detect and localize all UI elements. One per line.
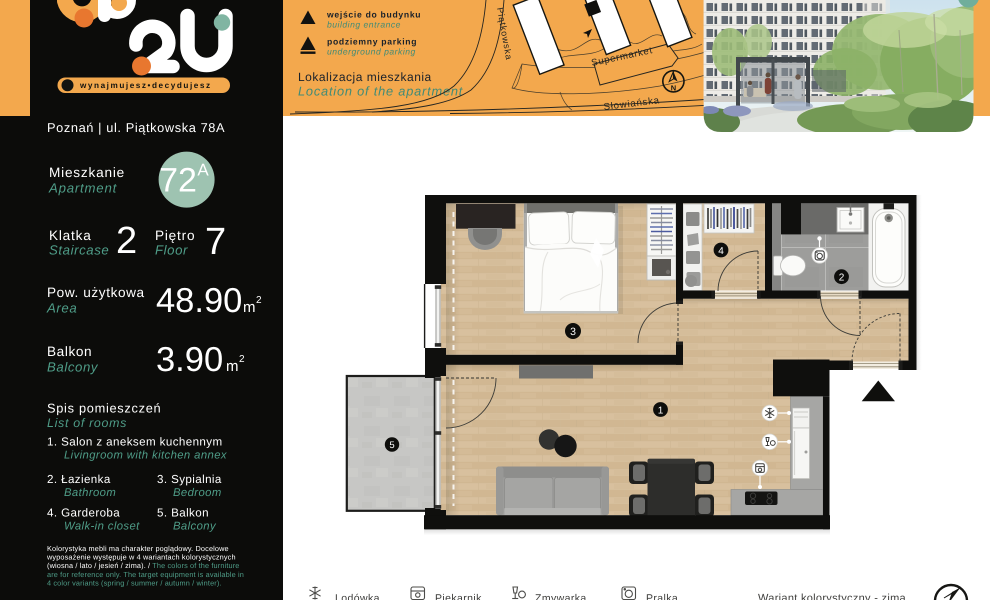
- svg-text:Walk-in closet: Walk-in closet: [64, 521, 140, 533]
- svg-text:A: A: [197, 161, 209, 180]
- svg-text:Area: Area: [46, 301, 77, 316]
- svg-text:Lodówka: Lodówka: [335, 593, 380, 600]
- svg-text:4: 4: [718, 246, 724, 257]
- svg-text:1: 1: [658, 405, 664, 416]
- svg-text:Zmywarka: Zmywarka: [535, 593, 587, 600]
- svg-text:3.90: 3.90: [156, 341, 223, 379]
- svg-text:3. Sypialnia: 3. Sypialnia: [157, 473, 222, 486]
- svg-text:Balcony: Balcony: [47, 360, 99, 375]
- svg-text:Spis pomieszczeń: Spis pomieszczeń: [47, 401, 161, 416]
- svg-text:Staircase: Staircase: [49, 243, 109, 258]
- svg-text:List of rooms: List of rooms: [47, 416, 127, 430]
- svg-text:4 color variants (spring / sum: 4 color variants (spring / summer / autu…: [47, 578, 222, 587]
- svg-text:Mieszkanie: Mieszkanie: [49, 165, 125, 180]
- svg-text:2. Łazienka: 2. Łazienka: [47, 473, 111, 486]
- svg-text:72: 72: [159, 162, 197, 200]
- svg-text:Piekarnik: Piekarnik: [435, 593, 482, 600]
- svg-text:48.90: 48.90: [156, 282, 242, 320]
- svg-text:Floor: Floor: [155, 243, 188, 258]
- svg-text:Wariant kolorystyczny - zima: Wariant kolorystyczny - zima: [758, 593, 907, 600]
- svg-text:Pralka: Pralka: [646, 593, 678, 600]
- svg-text:5. Balkon: 5. Balkon: [157, 507, 209, 520]
- svg-text:m: m: [243, 299, 256, 316]
- svg-text:Poznań | ul. Piątkowska 78A: Poznań | ul. Piątkowska 78A: [47, 120, 225, 135]
- svg-text:building entrance: building entrance: [327, 20, 401, 30]
- svg-text:Balkon: Balkon: [47, 344, 92, 359]
- svg-text:Piętro: Piętro: [155, 228, 195, 243]
- svg-text:7: 7: [205, 221, 226, 263]
- svg-text:Livingroom with kitchen annex: Livingroom with kitchen annex: [64, 450, 227, 462]
- svg-text:wynajmujesz•decydujesz: wynajmujesz•decydujesz: [79, 81, 212, 90]
- svg-text:Location of the apartment: Location of the apartment: [298, 84, 463, 99]
- svg-text:2: 2: [256, 295, 262, 306]
- svg-text:1. Salon z aneksem kuchennym: 1. Salon z aneksem kuchennym: [47, 436, 223, 449]
- svg-text:Klatka: Klatka: [49, 228, 92, 243]
- svg-text:Lokalizacja mieszkania: Lokalizacja mieszkania: [298, 70, 432, 84]
- svg-text:Pow. użytkowa: Pow. użytkowa: [47, 285, 145, 300]
- svg-text:wejście do budynku: wejście do budynku: [326, 10, 421, 20]
- svg-text:Bathroom: Bathroom: [64, 487, 116, 499]
- svg-text:Apartment: Apartment: [48, 181, 118, 196]
- svg-text:podziemny parking: podziemny parking: [327, 37, 417, 47]
- svg-text:m: m: [226, 358, 239, 375]
- svg-text:3: 3: [570, 326, 576, 338]
- svg-text:2: 2: [116, 220, 137, 262]
- svg-text:underground parking: underground parking: [327, 47, 416, 57]
- svg-text:Bedroom: Bedroom: [173, 487, 222, 499]
- svg-text:2: 2: [239, 354, 245, 365]
- svg-text:5: 5: [389, 440, 394, 451]
- svg-text:N: N: [671, 84, 676, 93]
- svg-text:Balcony: Balcony: [173, 521, 217, 533]
- svg-text:4. Garderoba: 4. Garderoba: [47, 507, 120, 520]
- svg-text:2: 2: [839, 273, 845, 284]
